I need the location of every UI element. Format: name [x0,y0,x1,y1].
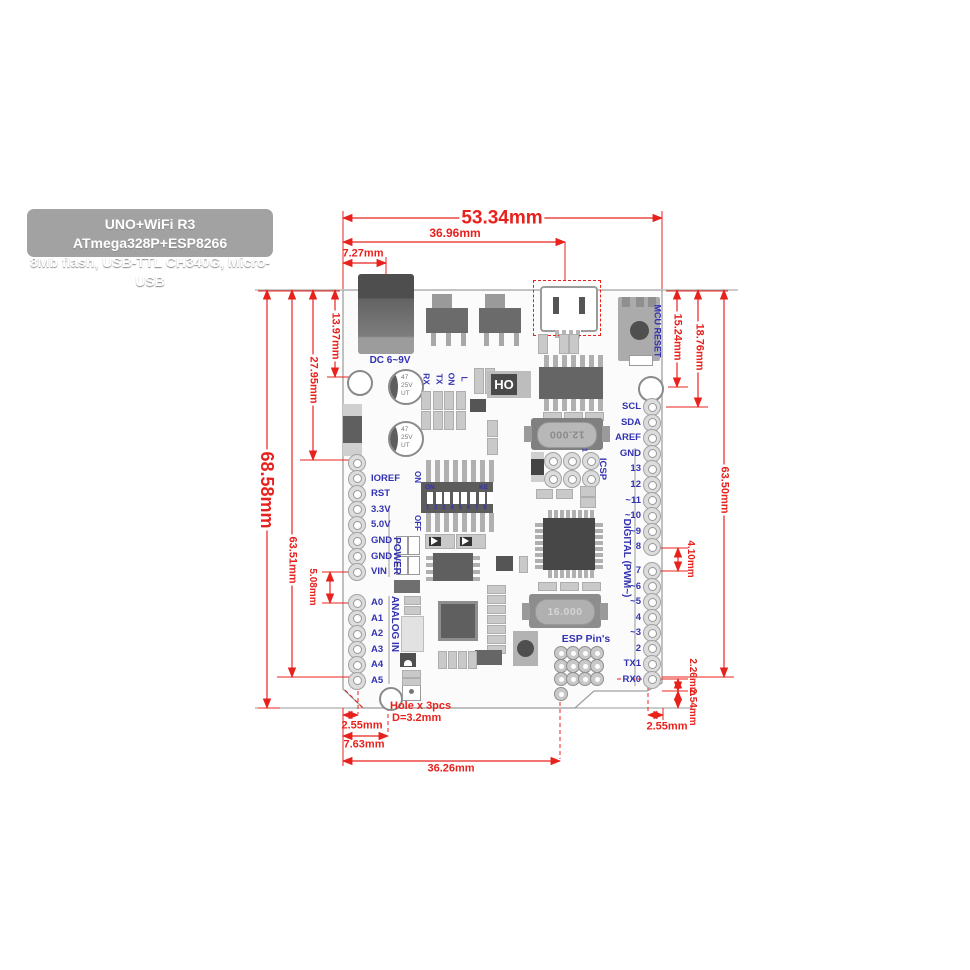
pin-label: GND [371,552,392,562]
capacitor-2-text: 4725VUT [401,426,413,450]
passive-6 [559,334,569,354]
pin-label: TX1 [624,659,641,669]
ic-pin [562,355,567,367]
ic-pin [535,541,543,545]
reset-button-cap [630,321,649,340]
ic-pin [535,547,543,551]
pin-label: RX0 [623,675,641,685]
pin-label: 5.0V [371,520,391,530]
resistor-bar [421,391,431,410]
pin-label: ~3 [630,628,641,638]
capacitor-2-polarity-mark [388,421,398,457]
dim-width-dc: 7.27mm [343,249,384,260]
ic-pin [584,510,588,518]
chain-pad [487,605,506,614]
ic-pin [535,559,543,563]
dim-width-usb: 36.96mm [429,227,480,239]
dim-right-15: 15.24mm [672,311,683,362]
esp-pad [590,672,604,686]
resistor-bar [456,411,466,430]
bottom-bar [438,651,447,669]
ic-pin [553,399,558,411]
pin-label: SCL [622,402,641,412]
diode-1 [425,534,455,549]
regulator-leg [461,333,466,346]
pin-label: ~11 [625,496,641,506]
ic-pin [473,570,480,574]
ic-pin [535,523,543,527]
dip-pin [471,513,476,532]
digital-header-pad [643,671,661,689]
icsp-diode-band [531,459,544,475]
resistor-bar [433,391,443,410]
ic-pin [572,570,576,578]
led-label-rx: RX [422,373,431,385]
ic-pin [595,535,603,539]
ic-pin [571,399,576,411]
reset-pad [629,355,653,366]
diode-1-arrow [431,537,438,545]
diode-2 [456,534,486,549]
dip-pin [480,460,485,482]
atmega328p-ic [543,518,595,570]
bottom-bar [448,651,457,669]
icsp-diode [531,452,544,482]
analog-bar-1 [404,596,421,605]
icsp-pad [544,452,562,470]
dim-right-63: 63.50mm [719,464,730,515]
dip-numbers: 1 2 3 4 5 6 7 8 [426,505,488,511]
ic-pin [473,563,480,567]
crystal-16-value: 16.000 [547,607,582,618]
dim-bottom-763: 7.63mm [344,740,385,751]
diode-left-band [343,416,362,443]
pin-label: RST [371,489,390,499]
icsp-label: ICSP [597,458,607,480]
esp-flash-button-cap [517,640,534,657]
ic-pin [560,570,564,578]
icsp-pad [563,470,581,488]
capacitor-1: 4725VUT [388,369,424,405]
ic-pin [548,570,552,578]
pin-label: GND [371,536,392,546]
ic-pin [595,565,603,569]
regulator-leg [514,333,519,346]
pin-label: A0 [371,598,383,608]
transistor-sot23 [470,399,486,412]
passive-4 [487,438,498,455]
dim-right-4: 4.10mm [685,540,695,577]
pin-label: GND [620,449,641,459]
mcu-reset-label: MCU RESET [653,304,662,357]
dim-height-total: 68.58mm [258,449,276,530]
icsp-pad-below-3 [580,486,596,497]
capacitor-1-polarity-mark [388,369,398,405]
resistor-bar [444,411,454,430]
dip-slider [470,492,476,504]
ic-pin [589,399,594,411]
ch340-ic [539,367,603,399]
ic-pin [554,510,558,518]
dim-right-255: 2.55mm [647,722,688,733]
regulator-1-body [426,308,468,333]
ic-pin [595,547,603,551]
switch-off-label: OFF [413,515,421,531]
pin-label: 4 [636,613,641,623]
pin-label: A1 [371,614,383,624]
ic-pin [589,355,594,367]
dip-slider [487,492,493,504]
ic-pin [535,535,543,539]
pcb-dimension-diagram: UNO+WiFi R3 ATmega328P+ESP8266 8Mb flash… [0,0,970,970]
analog-dark-comp [400,653,416,667]
led-label-tx: TX [434,374,443,385]
ic-pin [595,559,603,563]
dip-slider [444,492,450,504]
ic-pin [590,570,594,578]
dip-slider [453,492,459,504]
ic-pin [578,510,582,518]
pin-label: 3.3V [371,505,391,515]
dim-width-total: 53.34mm [459,209,544,228]
hole-note-line-1: Hole x 3pcs [390,700,451,712]
reset-tab-1 [622,297,630,307]
dim-left-27: 27.95mm [308,354,319,405]
dim-left-5: 5.08mm [307,568,317,605]
dip-pin [489,513,494,532]
chain-pad [487,625,506,634]
pin-label: SDA [621,418,641,428]
regulator-1-tab [432,294,452,309]
ic-pin [560,510,564,518]
pin-label: VIN [371,567,387,577]
led-label-on: ON [447,373,456,386]
icsp-pad-below-1 [536,489,553,499]
ic-pin [544,355,549,367]
ic-pin [562,399,567,411]
regulator-leg [446,333,451,346]
regulator-leg [431,333,436,346]
pin-label: 12 [630,480,641,490]
usb-crystal-chip-face: HO [491,374,517,395]
esp-pad [590,646,604,660]
ic-pin [595,529,603,533]
crystal-16-tab-right [600,603,608,620]
c16-pad-2 [560,582,579,591]
pin-label: AREF [615,433,641,443]
dip-pin [426,460,431,482]
sot5-ic [496,556,513,571]
resistor-bar [444,391,454,410]
dip-pin [453,513,458,532]
ic-pin [584,570,588,578]
pin-label: A4 [371,660,383,670]
dip-pin [480,513,485,532]
usb-crystal-chip: HO [487,371,531,398]
analog-big-pad [401,616,424,652]
ic-pin [535,529,543,533]
crystal-12-value: 12.000 [549,429,584,440]
resistor-bar [433,411,443,430]
ic-pin [426,570,433,574]
esp-pins-label: ESP Pin's [562,634,610,645]
analog-bar-2 [404,606,421,615]
capacitor-2: 4725VUT [388,421,424,457]
dip-ke-label: KE [479,484,488,491]
c16-pad-3 [582,582,601,591]
ic-pin [554,570,558,578]
passive-3 [487,420,498,437]
bottom-bar [468,651,477,669]
ic-pin [595,523,603,527]
passive-8 [519,556,528,573]
reset-tab-2 [636,297,644,307]
regulator-2-tab [485,294,505,309]
pin-label: 8 [636,542,641,552]
ic-pin [535,565,543,569]
ic-pin [598,355,603,367]
capacitor-1-text: 4725VUT [401,374,413,398]
ic-pin [566,510,570,518]
analog-bar-4 [402,678,421,686]
icsp-pad-below-4 [580,497,596,508]
ic-pin [598,399,603,411]
power-pad-2 [408,536,420,555]
pin-label: 2 [636,644,641,654]
esp-pad [590,659,604,673]
dip-slider [436,492,442,504]
dip-slider [479,492,485,504]
crystal-16-tab-left [522,603,530,620]
dim-right-254: 2.54mm [687,688,697,725]
analog-bar-3 [402,670,421,678]
title-line-1: UNO+WiFi R3 ATmega328P+ESP8266 [27,215,273,253]
title-box: UNO+WiFi R3 ATmega328P+ESP8266 8Mb flash… [27,209,273,257]
dip-pin [462,513,467,532]
hole-note-line-2: D=3.2mm [392,712,441,724]
pad-square-dot [409,689,414,694]
dim-left-13: 13.97mm [330,310,341,361]
icsp-pad-below-2 [556,489,573,499]
dip-on-label: ON [425,484,435,491]
pin-label: A2 [371,629,383,639]
dip-pin [471,460,476,482]
ic-pin [590,510,594,518]
diode-2-arrow [462,537,469,545]
ic-pin [553,355,558,367]
ic-pin [535,553,543,557]
dip-pin [426,513,431,532]
pin-label: 7 [636,566,641,576]
icsp-pin1-label: 1 [581,448,588,452]
ic-pin [473,556,480,560]
dim-bottom-3626: 36.26mm [427,764,474,775]
passive-7 [569,334,579,354]
led-label-l: L [460,376,469,381]
ic-pin [548,510,552,518]
qfn-ic [438,601,478,641]
resistor-bar [456,391,466,410]
regulator-2-body [479,308,521,333]
dip-pin [453,460,458,482]
usb-dashed-outline [533,280,601,336]
diode-left-column [343,404,362,456]
chain-pad [487,595,506,604]
icsp-pad [563,452,581,470]
regulator-leg [484,333,489,346]
dip-pin [489,460,494,482]
dip-pin [462,460,467,482]
dip-pin [444,513,449,532]
chain-pad [487,585,506,594]
dim-bottom-255: 2.55mm [342,721,383,732]
icsp-pad [544,470,562,488]
ic-pin [426,577,433,581]
resistor-bar [421,411,431,430]
dim-left-63: 63.51mm [287,534,298,585]
dip-slider [427,492,433,504]
pin-label: ~5 [630,597,641,607]
ic-pin [595,553,603,557]
ic-pin [426,563,433,567]
mounting-hole-top-left [347,370,373,396]
chain-pad [487,615,506,624]
passive-1 [474,368,484,394]
pin-label: 13 [630,464,641,474]
ic-pin [595,541,603,545]
ic-pin [473,577,480,581]
crystal-12-tab-right [602,426,610,442]
regulator-leg [499,333,504,346]
switch-on-label: ON [413,471,421,483]
dc-jack [358,274,414,354]
dip-pin [435,460,440,482]
ic-pin [426,556,433,560]
ic-pin [572,510,576,518]
title-line-2: 8Mb flash, USB-TTL CH340G, Micro-USB [27,253,273,291]
dip-pin [444,460,449,482]
esp-pad [554,687,568,701]
pin-label: A5 [371,676,383,686]
chain-pad [487,635,506,644]
passive-5 [538,334,548,354]
dip-slider [461,492,467,504]
esp-flash-button [513,631,538,666]
soic8-ic [433,553,473,581]
digital-group-label: DIGITAL (PWM~) [621,519,631,598]
analog-dark-comp-dot [404,660,412,666]
pin-label: A3 [371,645,383,655]
power-pad-4 [408,556,420,575]
analog-header-pad [348,672,366,690]
c16-pad-1 [538,582,557,591]
smd-dark-bottom [475,650,502,665]
ic-pin [566,570,570,578]
analog-group-label: ANALOG IN [389,596,399,652]
ic-pin [571,355,576,367]
ic-pin [580,355,585,367]
dip-pin [435,513,440,532]
dc-power-label: DC 6~9V [370,356,411,366]
crystal-12-tab-left [524,426,532,442]
dim-right-18: 18.76mm [694,321,705,372]
power-group-label: POWER [391,537,401,575]
smd-resistor-vin [394,580,420,593]
pin-label: IOREF [371,474,400,484]
ic-pin [544,399,549,411]
bottom-bar [458,651,467,669]
ic-pin [578,570,582,578]
ic-pin [580,399,585,411]
